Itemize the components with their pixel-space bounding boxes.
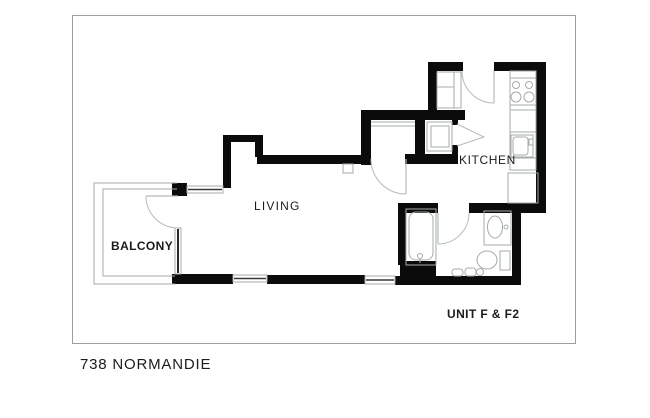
refrigerator-outline [437,72,461,108]
wall [257,155,371,164]
wall [362,110,465,120]
sink-faucet [529,139,533,145]
shelf-box-inner [431,126,449,147]
bathroom-door [438,213,469,244]
stove [510,78,536,105]
closet-door [371,159,406,194]
balcony-door [146,196,178,228]
wall [452,113,458,125]
room-label-kitchen: KITCHEN [459,154,516,166]
stove-burner [511,92,521,102]
wall [223,135,231,188]
wall [400,261,436,281]
wall-notch [343,164,353,173]
door-swing-arc [371,159,406,194]
toilet-bowl [477,251,497,269]
room-label-balcony: BALCONY [111,240,173,252]
bathtub [406,209,436,265]
stove-burner [513,82,520,89]
wall [267,275,365,284]
unit-label: UNIT F & F2 [447,308,519,320]
toilet-tank [500,251,510,270]
entry-door [462,71,494,103]
wall [398,203,406,265]
bath-accessories [452,268,484,276]
room-label-living: LIVING [254,200,301,212]
floor-plan-sheet: LIVING KITCHEN BALCONY UNIT F & F2 738 N… [0,0,650,418]
accessory [465,268,476,276]
wall [405,154,458,164]
stove-burner [526,82,533,89]
wall [512,203,521,285]
stove-burner [524,92,534,102]
balcony-railing [94,183,177,284]
vanity-faucet [504,225,508,229]
wall [172,274,233,284]
refrigerator [437,72,461,108]
plan-title: 738 NORMANDIE [80,356,211,373]
door-swing-arc [438,213,469,244]
vanity-basin [488,216,503,238]
wall [428,62,437,111]
door-swing-arc [462,71,494,103]
accessory [452,269,463,276]
railing-inner-line [103,189,177,276]
pantry-shelf-unit [427,122,452,151]
bathtub-drain [418,254,423,259]
lower-cabinet [508,173,538,203]
door-swing-arc [146,196,178,228]
toilet [477,251,510,270]
railing-outer-line [94,183,177,284]
vanity-sink [484,211,511,245]
coat-closet-shelf [371,122,415,126]
bathtub-basin [409,212,433,260]
pantry-angled-door [457,124,484,146]
accessory [477,269,484,276]
